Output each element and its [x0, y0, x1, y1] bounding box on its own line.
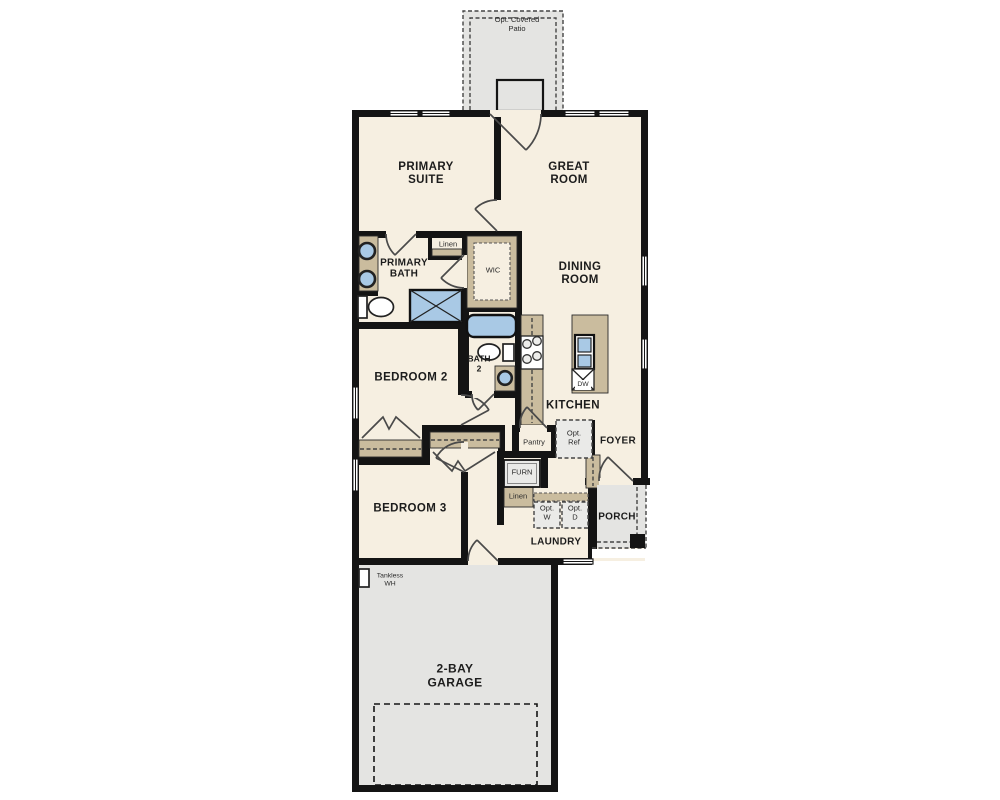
door-gap: [490, 110, 541, 117]
wall-laundry-left: [497, 451, 504, 525]
burner-icon: [523, 340, 532, 349]
porch-column: [630, 534, 645, 548]
wall-closet2-bottom: [352, 457, 428, 465]
door-gap: [599, 478, 633, 485]
label-garage: 2-BAY GARAGE: [424, 662, 486, 689]
sink-icon: [359, 243, 375, 259]
wall-closet3-top: [430, 425, 505, 432]
door-gap: [462, 255, 467, 288]
wall-right: [641, 110, 648, 485]
label-kitchen: KITCHEN: [546, 399, 600, 412]
label-linen-bath: Linen: [439, 241, 457, 250]
wall-left: [352, 110, 359, 792]
toilet-tank: [503, 344, 514, 361]
wall-furn-right: [541, 458, 548, 488]
window: [599, 111, 629, 116]
label-porch: PORCH: [598, 511, 636, 522]
linen-bath-shelf: [432, 249, 462, 256]
label-furn: FURN: [512, 469, 533, 478]
label-dining-room: DINING ROOM: [555, 261, 605, 287]
mask-below-porch: [592, 549, 652, 558]
window: [565, 111, 595, 116]
label-foyer: FOYER: [600, 435, 636, 446]
label-pantry: Pantry: [523, 439, 545, 448]
toilet-tank: [358, 296, 367, 318]
label-linen-hall: Linen: [509, 493, 527, 502]
door-gap: [458, 395, 465, 425]
sink-icon: [359, 271, 375, 287]
wall-bedroom3-right: [461, 472, 468, 565]
window: [642, 256, 647, 286]
label-dishwasher: DW: [577, 381, 588, 389]
wall-closet-divider: [422, 425, 430, 465]
burner-icon: [533, 352, 542, 361]
door-gap: [468, 558, 498, 565]
floor-plan: Opt. Covered Patio PRIMARY SUITE GREAT R…: [0, 0, 1000, 800]
label-primary-bath: PRIMARY BATH: [378, 258, 430, 281]
label-great-room: GREAT ROOM: [544, 161, 594, 187]
window: [563, 559, 593, 564]
wall-garage-right: [551, 561, 558, 792]
window: [353, 387, 358, 419]
window: [642, 339, 647, 369]
island-sink-bowl: [578, 355, 591, 367]
label-patio: Opt. Covered Patio: [490, 16, 544, 33]
label-opt-washer: Opt. W: [537, 504, 557, 521]
tankless-water-heater: [359, 569, 369, 587]
label-bath2: BATH 2: [464, 354, 494, 373]
window: [422, 111, 450, 116]
wall-pantry-top-a: [512, 425, 520, 432]
island-sink-bowl: [578, 338, 591, 352]
patio-door-vestibule: [497, 80, 543, 111]
window: [390, 111, 418, 116]
wall-garage-bottom: [352, 785, 558, 792]
label-opt-dryer: Opt. D: [565, 504, 585, 521]
door-gap: [494, 200, 501, 231]
bathtub: [467, 315, 516, 337]
sink-icon: [498, 371, 512, 385]
label-laundry: LAUNDRY: [531, 536, 582, 547]
window: [353, 459, 358, 491]
burner-icon: [523, 355, 532, 364]
door-gap: [520, 425, 547, 432]
burner-icon: [533, 337, 542, 346]
label-primary-suite: PRIMARY SUITE: [394, 161, 458, 187]
laundry-shelf: [534, 493, 588, 501]
toilet-icon: [369, 298, 394, 317]
floor-plan-drawing: [0, 0, 1000, 800]
label-opt-ref: Opt. Ref: [563, 429, 585, 446]
label-bedroom3: BEDROOM 3: [373, 502, 446, 515]
label-wic: WIC: [486, 267, 501, 276]
label-tankless-wh: Tankless WH: [373, 572, 407, 587]
wall-furn-top: [497, 451, 558, 458]
wall-bath2-bottom-b: [494, 391, 522, 398]
door-gap: [386, 231, 416, 238]
label-bedroom2: BEDROOM 2: [374, 371, 447, 384]
